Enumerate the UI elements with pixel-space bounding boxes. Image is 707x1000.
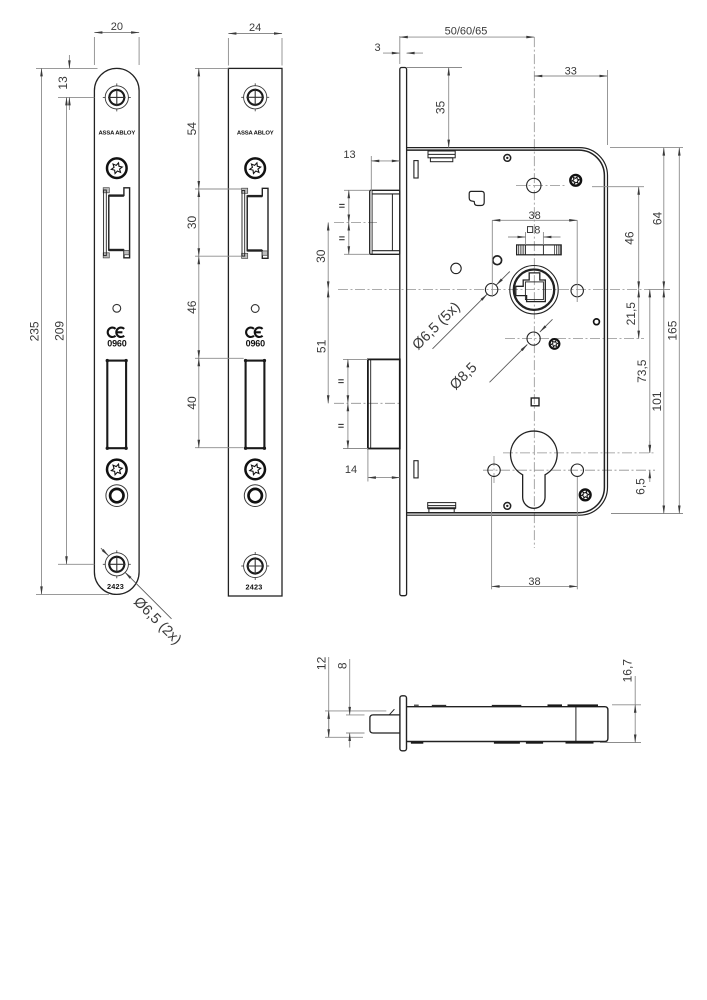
svg-text:3: 3: [375, 42, 381, 54]
svg-text:165: 165: [665, 320, 679, 340]
svg-text:54: 54: [185, 122, 199, 136]
svg-text:46: 46: [623, 231, 637, 245]
svg-text:46: 46: [185, 300, 199, 314]
svg-text:35: 35: [434, 101, 448, 115]
svg-text:2423: 2423: [107, 582, 124, 591]
svg-text:6,5: 6,5: [634, 478, 648, 495]
svg-text:0960: 0960: [246, 339, 265, 349]
svg-text:30: 30: [185, 216, 199, 230]
svg-text:209: 209: [53, 321, 67, 341]
svg-text:14: 14: [345, 464, 357, 476]
svg-text:50/60/65: 50/60/65: [445, 26, 488, 38]
svg-text:235: 235: [28, 321, 42, 341]
svg-text:12: 12: [314, 656, 328, 670]
svg-text:2423: 2423: [245, 583, 262, 592]
svg-text:73,5: 73,5: [635, 359, 649, 383]
svg-text:13: 13: [56, 76, 70, 90]
svg-text:8: 8: [534, 225, 540, 237]
svg-text:ASSA ABLOY: ASSA ABLOY: [98, 131, 135, 137]
svg-text:40: 40: [185, 396, 199, 410]
svg-text:21,5: 21,5: [624, 302, 638, 326]
svg-text:101: 101: [650, 391, 664, 411]
svg-text:33: 33: [565, 65, 577, 77]
svg-text:13: 13: [343, 149, 355, 161]
svg-text:20: 20: [111, 21, 123, 33]
svg-text:64: 64: [651, 212, 665, 226]
svg-text:24: 24: [249, 22, 261, 34]
svg-text:ASSA ABLOY: ASSA ABLOY: [237, 131, 274, 137]
svg-text:0960: 0960: [107, 339, 126, 349]
svg-text:30: 30: [314, 249, 328, 263]
svg-text:8: 8: [335, 662, 349, 669]
svg-text:51: 51: [315, 339, 329, 353]
svg-text:16,7: 16,7: [621, 659, 635, 683]
